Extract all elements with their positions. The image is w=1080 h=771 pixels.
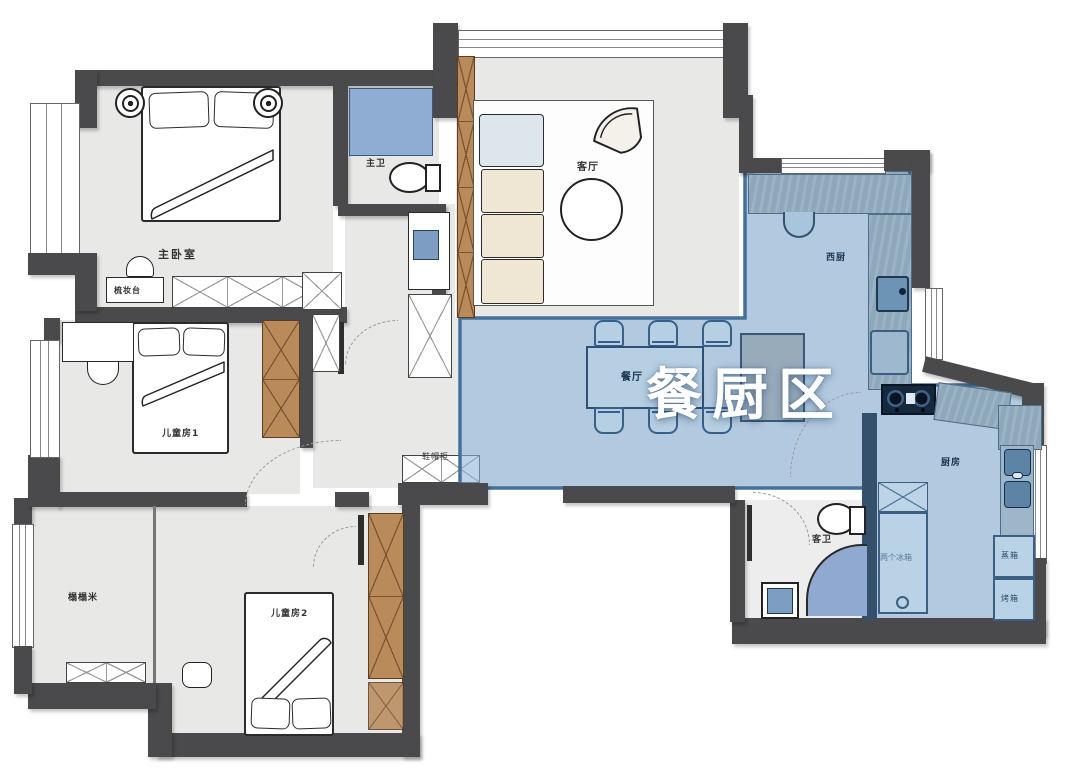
kitchen-counter-corner (998, 405, 1042, 450)
wall-segment (44, 318, 60, 342)
wall-segment (346, 70, 440, 86)
west-kitchen-label: 西厨 (826, 250, 846, 263)
sofa-seat (481, 259, 544, 304)
wall-segment (739, 158, 781, 173)
sofa-chaise (479, 114, 544, 167)
hall-cabinet (302, 272, 342, 310)
wall-segment (433, 23, 458, 118)
kitchen-label: 厨房 (941, 455, 961, 468)
shower-area (349, 88, 433, 156)
steam-oven-label: 蒸箱 (1001, 550, 1019, 561)
gas-stove (881, 384, 936, 415)
window (30, 340, 60, 458)
wall-segment (398, 483, 488, 505)
partition-line (153, 506, 156, 683)
wall-segment (28, 683, 156, 709)
hall-cabinet (408, 294, 452, 378)
window (458, 30, 725, 58)
two-fridges-label: 两个冰箱 (880, 552, 912, 563)
living-room-label: 客厅 (577, 158, 599, 173)
ceiling-speaker-icon (253, 88, 283, 118)
kids-room-1-label: 儿童房1 (162, 426, 199, 439)
master-bath-label: 主卫 (366, 156, 386, 169)
kids1-wardrobe (262, 320, 300, 438)
sofa-seat (481, 214, 544, 258)
kids2-wardrobe (368, 513, 404, 679)
dining-chair (648, 320, 678, 347)
door-leaf (747, 505, 752, 561)
window (12, 524, 34, 648)
dining-room-label: 餐厅 (621, 368, 643, 383)
dressing-table-label: 梳妆台 (114, 285, 141, 296)
toilet-tank (849, 506, 866, 535)
kids-room-2-label: 儿童房2 (271, 606, 308, 619)
wall-segment (14, 646, 32, 694)
west-kitchen-counter (748, 174, 912, 214)
kids2-wardrobe-lower (368, 682, 404, 730)
door-leaf (358, 515, 364, 565)
wall-segment (730, 500, 745, 622)
wall-segment (28, 455, 60, 507)
wall-segment (75, 70, 347, 86)
side-table (182, 662, 212, 688)
wall-segment (156, 733, 420, 757)
wall-segment (563, 486, 735, 503)
stool (126, 256, 154, 277)
wall-segment (75, 253, 97, 311)
wall-segment (402, 505, 420, 757)
toilet-tank (425, 164, 441, 192)
kitchen-cabinet (878, 482, 928, 512)
oven-label: 烤箱 (1001, 593, 1019, 604)
pillow (250, 697, 290, 729)
wall-segment (333, 86, 348, 206)
dining-chair (702, 320, 732, 347)
bay-window (30, 103, 80, 257)
wash-basin (413, 230, 439, 260)
double-sink (1004, 481, 1031, 508)
floor-plan: 鞋帽柜 (0, 0, 1080, 771)
toilet (389, 162, 430, 193)
sofa-seat (481, 169, 544, 213)
guest-bath-label: 客卫 (812, 532, 832, 545)
faucet-icon (1012, 472, 1023, 479)
tatami-cabinet (66, 662, 146, 683)
highlight-zone-title: 餐厨区 (646, 350, 844, 431)
wall-segment (732, 618, 1046, 644)
window (925, 288, 943, 360)
wall-segment (28, 253, 78, 275)
ceiling-speaker-icon (115, 88, 145, 118)
dining-chair (594, 407, 624, 434)
faucet-icon (899, 288, 906, 295)
fridge-handle (896, 596, 909, 609)
armchair (584, 94, 650, 163)
wall-segment (912, 150, 930, 288)
master-bedroom-label: 主卧室 (158, 246, 197, 262)
desk (62, 322, 134, 362)
guest-basin (767, 588, 793, 614)
wall-segment (57, 492, 247, 507)
window (781, 158, 886, 174)
hall-cabinet (312, 314, 340, 372)
fridge (870, 330, 909, 375)
tatami-label: 榻榻米 (68, 590, 98, 603)
coffee-table (560, 178, 623, 241)
dining-chair (594, 320, 624, 347)
pillow (291, 697, 331, 729)
